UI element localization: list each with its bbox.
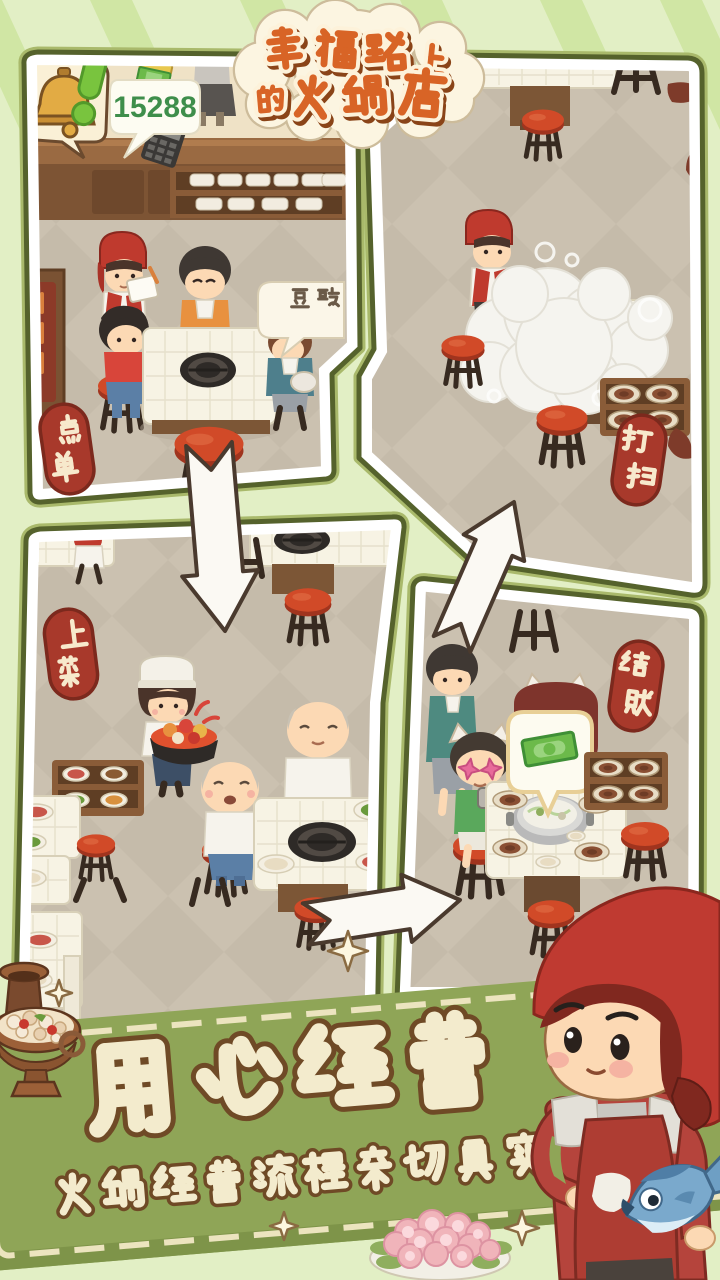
svg-text:15288: 15288 xyxy=(113,91,196,124)
